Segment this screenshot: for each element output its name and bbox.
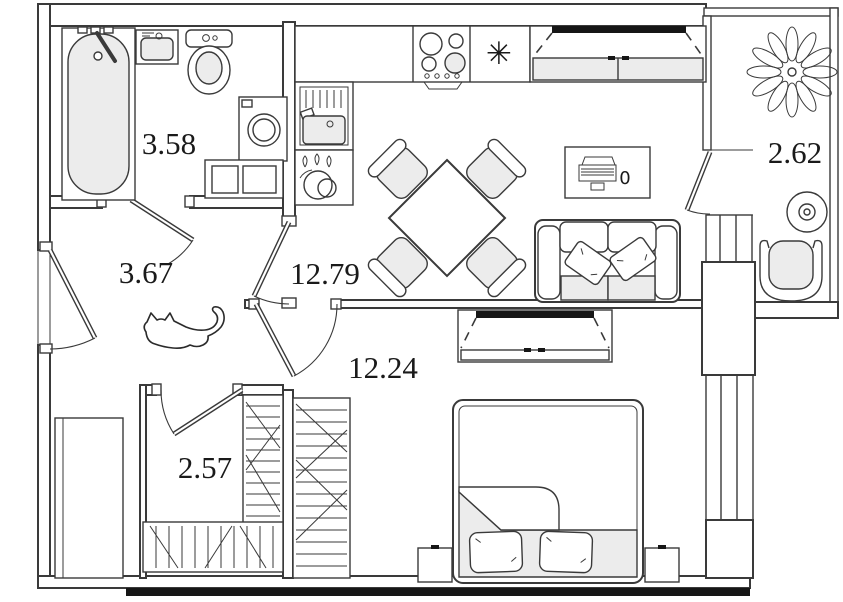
wall-accent <box>126 588 750 596</box>
entrance-door <box>40 242 95 353</box>
bedroom-wardrobe-icon <box>458 310 612 362</box>
wall <box>238 385 283 395</box>
cat-icon <box>144 307 224 348</box>
room-label-bedroom: 12.24 <box>348 350 418 385</box>
bathroom <box>62 27 287 200</box>
cabinet-niche-icon <box>55 418 123 578</box>
clothes-rail-icon <box>143 522 283 572</box>
wall <box>283 390 293 578</box>
bedroom-window <box>706 375 753 520</box>
bathtub-icon <box>62 27 135 200</box>
closet <box>55 395 283 578</box>
refrigerator-icon: ✳ <box>486 36 512 72</box>
desk-chair-icon: 0 <box>619 168 630 189</box>
room-label-closet: 2.57 <box>178 450 232 485</box>
washing-machine-icon <box>239 97 287 161</box>
wall <box>38 345 50 588</box>
wardrobe-icon <box>530 26 706 82</box>
balcony-chair-icon <box>760 241 822 301</box>
sofa-icon <box>535 220 680 302</box>
balcony-wall <box>753 302 838 318</box>
shelving-icon <box>243 395 283 525</box>
balcony-table-icon <box>787 192 827 232</box>
bathroom-door <box>97 196 194 264</box>
wall <box>38 4 706 26</box>
floor-plan: ✳ <box>0 0 843 602</box>
bed-icon <box>453 400 643 583</box>
pillow-icon <box>469 531 522 573</box>
dining-set <box>366 137 528 299</box>
desk: 0 <box>565 147 650 198</box>
hallway <box>144 307 224 348</box>
nightstand-icon <box>418 545 452 582</box>
bedroom-door <box>249 299 341 376</box>
plant-icon <box>747 27 837 117</box>
balcony-wall <box>704 8 838 16</box>
bathroom-sink-icon <box>136 30 178 64</box>
kitchen-sink-icon <box>295 82 353 150</box>
toilet-icon <box>186 30 232 94</box>
balcony-wall <box>830 8 838 318</box>
floor-plan-drawing: ✳ <box>0 0 843 602</box>
balcony-door <box>687 150 753 215</box>
room-label-bathroom: 3.58 <box>142 126 196 161</box>
shelving-icon <box>293 398 350 578</box>
closet-door <box>152 384 242 434</box>
nightstand-icon <box>645 545 679 582</box>
wall <box>38 4 50 250</box>
room-label-kitchen-living: 12.79 <box>290 256 360 291</box>
wall <box>706 520 753 578</box>
dishes-icon <box>295 150 353 205</box>
room-label-hallway: 3.67 <box>119 255 173 290</box>
bathroom-cabinet-icon <box>205 160 283 198</box>
wall-pier <box>702 262 755 375</box>
pillow-icon <box>539 531 592 573</box>
living-balcony-window <box>706 215 752 262</box>
room-label-balcony: 2.62 <box>768 135 822 170</box>
